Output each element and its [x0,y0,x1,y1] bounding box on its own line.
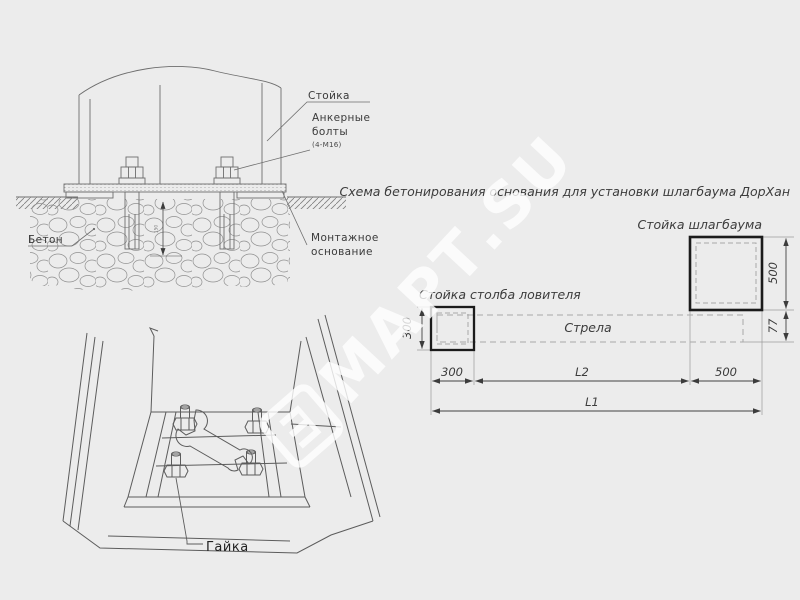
wrench [176,410,252,471]
dim-boom-drop: 77 [766,318,780,333]
mounting-base-label-2: основание [311,246,373,258]
post-walls [79,83,281,184]
front-rim [124,497,310,507]
anchor-bolts-label-1: Анкерные [312,112,370,124]
grout-pad-right [237,192,284,198]
bolt-nut-3 [164,452,188,477]
dim-total: L1 [585,395,599,409]
barrier-post-square [690,237,762,310]
left-wall-lines [63,333,103,530]
ground-hatch-right [287,197,346,209]
concrete-leader-tip [93,228,95,230]
floor-plate [128,341,305,497]
drawing-sheet: 150 Стойка Анкерные болты (4-М16) Монтаж… [0,0,800,600]
dim-right-height: 500 [766,262,780,284]
concrete-body [30,199,290,291]
boom-label: Стрела [564,320,611,335]
technical-drawing: 150 Стойка Анкерные болты (4-М16) Монтаж… [0,0,800,600]
anchor-bolts-note: (4-М16) [312,140,342,149]
far-corner-edge [150,328,158,412]
dim-mid: L2 [575,365,589,379]
anchor-bolts-label-2: болты [312,126,348,138]
mounting-base-label-1: Монтажное [311,232,379,244]
post-label: Стойка [308,90,350,102]
catcher-post-label: Стойка столба ловителя [419,287,581,302]
post-break-line [79,66,281,95]
mounting-plate [64,184,286,192]
dim-left-width: 300 [441,365,463,379]
barrier-post-inner-dashed [696,243,756,303]
nut-leader [176,478,203,544]
concrete-label: Бетон [28,234,63,246]
embed-dim-label: 150 [154,225,160,234]
plan-view: Схема бетонирования основания для устано… [340,184,794,415]
barrier-post-label: Стойка шлагбаума [638,217,762,232]
perspective-view [63,315,380,553]
dim-right-width: 500 [715,365,737,379]
catcher-post-inner-dashed [437,313,468,344]
dim-left-height: 300 [400,317,414,339]
right-wall-lines [306,315,380,521]
anchor-leader [234,150,310,170]
plan-title: Схема бетонирования основания для устано… [340,184,790,199]
nut-label: Гайка [206,540,249,555]
bolt-nut-1 [173,405,197,430]
